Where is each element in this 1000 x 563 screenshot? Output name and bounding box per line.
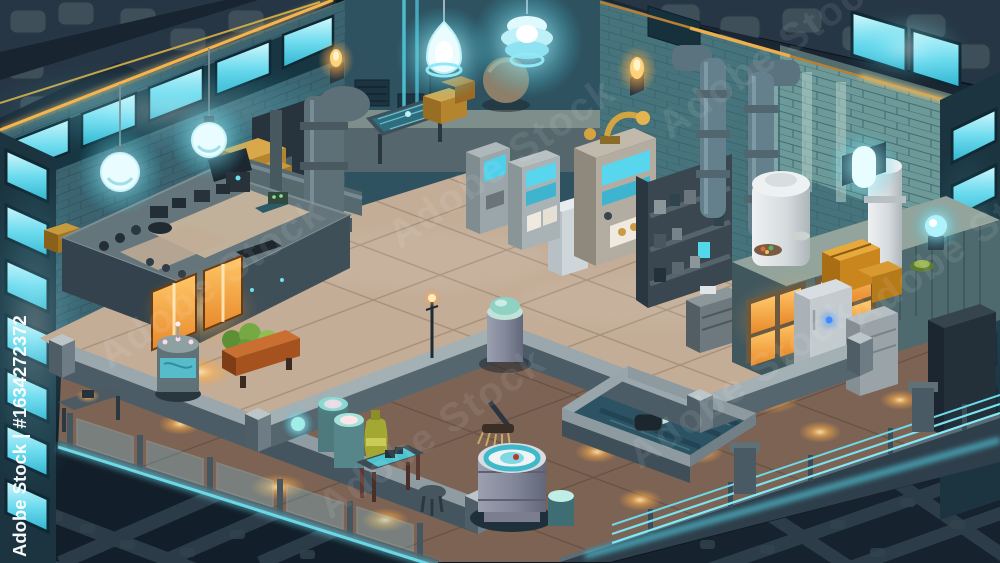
small-teal-cylinder <box>548 490 574 526</box>
centrifuge-device <box>470 443 554 532</box>
bowl <box>754 244 782 256</box>
stock-image-canvas: Adobe Stock Adobe Stock Adobe Stock Adob… <box>0 0 1000 563</box>
wall-tube-lamp <box>828 130 900 202</box>
teal-orb <box>291 417 305 431</box>
stool <box>418 485 446 516</box>
plate <box>790 232 810 241</box>
stock-id-watermark: Adobe Stock | #1634272372 <box>9 315 30 557</box>
isometric-lab-illustration: Adobe Stock Adobe Stock Adobe Stock Adob… <box>0 0 1000 563</box>
